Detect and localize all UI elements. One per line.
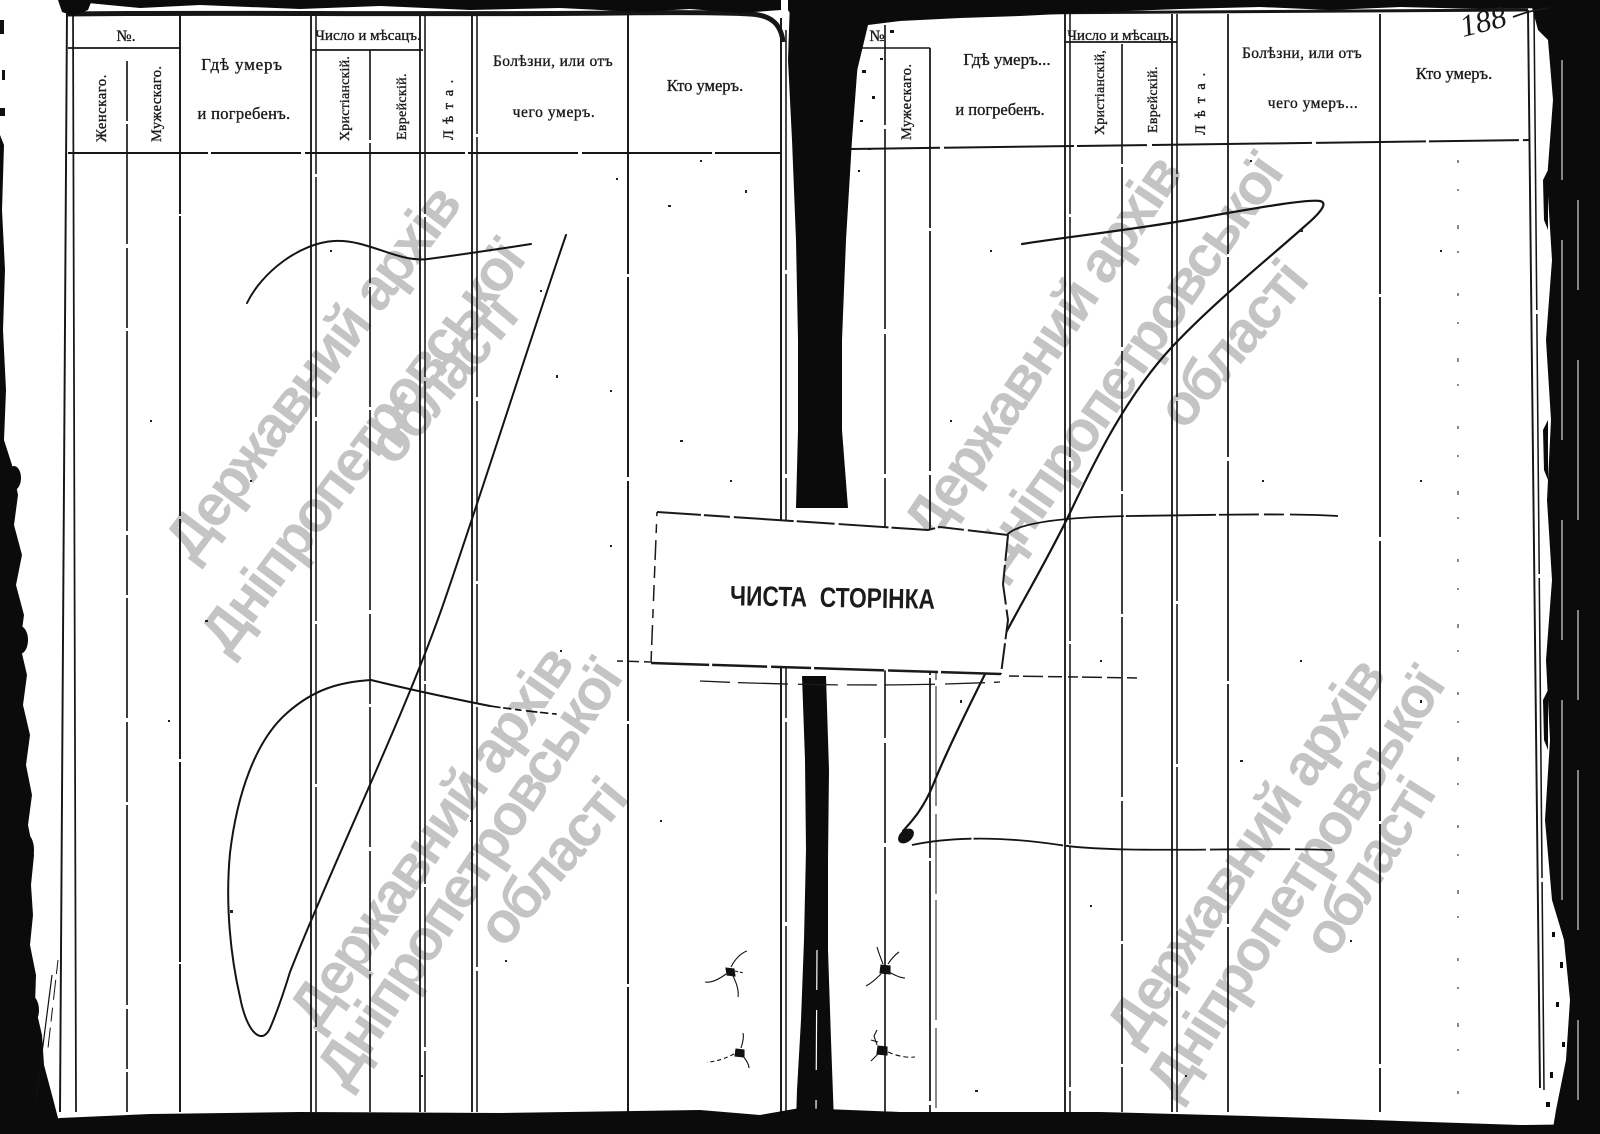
svg-text:Мужескаго.: Мужескаго. xyxy=(149,66,165,142)
svg-text:Христіанскій.: Христіанскій. xyxy=(338,56,353,141)
svg-text:Кто умеръ.: Кто умеръ. xyxy=(1416,64,1492,83)
svg-text:№: № xyxy=(869,28,884,45)
svg-text:Христіанскій,: Христіанскій, xyxy=(1093,50,1108,135)
svg-text:№.: №. xyxy=(116,28,135,45)
svg-text:и погребенъ.: и погребенъ. xyxy=(198,104,291,123)
svg-text:Гдѣ умеръ...: Гдѣ умеръ... xyxy=(963,50,1050,69)
svg-text:Кто умеръ.: Кто умеръ. xyxy=(667,76,743,95)
svg-text:Болѣзни, или отъ: Болѣзни, или отъ xyxy=(1242,45,1362,62)
svg-text:ЧИСТА СТОРІНКА: ЧИСТА СТОРІНКА xyxy=(730,580,936,615)
svg-text:Болѣзни, или отъ: Болѣзни, или отъ xyxy=(493,53,613,70)
svg-text:Мужескаго.: Мужескаго. xyxy=(899,64,915,140)
svg-text:Число и мѣсацъ.: Число и мѣсацъ. xyxy=(315,28,421,44)
svg-text:Гдѣ умеръ: Гдѣ умеръ xyxy=(201,55,283,74)
svg-text:чего умеръ.: чего умеръ. xyxy=(513,104,596,121)
svg-text:Число и мѣсацъ.: Число и мѣсацъ. xyxy=(1067,28,1173,44)
svg-text:и погребенъ.: и погребенъ. xyxy=(955,100,1044,119)
svg-text:Лѣта.: Лѣта. xyxy=(1193,66,1209,135)
svg-text:Женскаго.: Женскаго. xyxy=(94,74,110,142)
svg-text:Еврейскій.: Еврейскій. xyxy=(395,73,410,140)
svg-text:Еврейскій.: Еврейскій. xyxy=(1146,66,1161,133)
svg-text:чего умеръ...: чего умеръ... xyxy=(1268,95,1358,112)
svg-text:Лѣта.: Лѣта. xyxy=(441,73,457,140)
